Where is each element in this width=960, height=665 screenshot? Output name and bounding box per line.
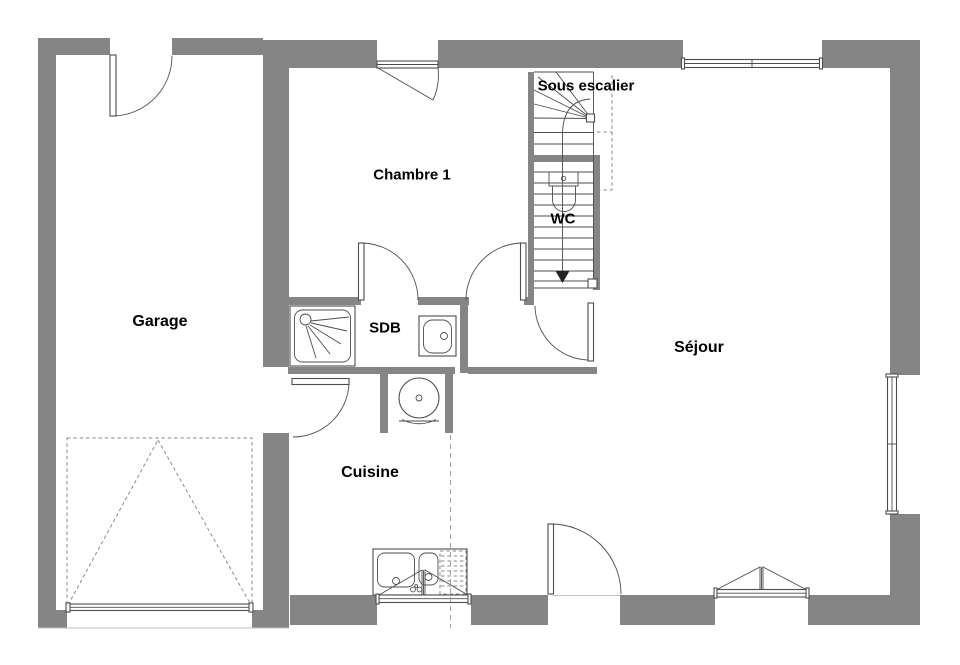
exterior-walls: [38, 38, 920, 628]
living-room-french-door: [714, 567, 809, 598]
toilet: [549, 172, 578, 212]
washbasin: [419, 316, 456, 356]
room-label-sdb: SDB: [369, 320, 401, 337]
room-label-garage: Garage: [132, 313, 187, 331]
room-label-chambre1: Chambre 1: [373, 167, 451, 184]
living-room-side-window: [886, 374, 898, 514]
living-room-top-window: [682, 58, 823, 69]
stair-winder-node: [587, 114, 595, 122]
entry-door: [548, 524, 621, 596]
sink-drainboard: [440, 551, 466, 594]
staircase: [534, 72, 612, 288]
garage-side-door: [110, 55, 172, 116]
bedroom-bathroom-door: [359, 243, 419, 300]
bedroom-hall-door: [466, 243, 526, 300]
kitchen-sink: [373, 549, 467, 595]
room-label-sous-escalier: Sous escalier: [538, 78, 635, 95]
wc-door: [535, 303, 594, 361]
shower: [290, 306, 355, 366]
room-label-wc: WC: [551, 211, 576, 228]
room-label-sejour: Séjour: [674, 339, 724, 357]
water-heater: [399, 378, 439, 424]
floor-plan-drawing: [0, 0, 960, 665]
floor-plan: Garage Chambre 1 Sous escalier WC SDB Cu…: [0, 0, 960, 665]
garage-door: [66, 438, 253, 612]
garage-kitchen-door: [292, 379, 349, 438]
room-label-cuisine: Cuisine: [341, 464, 399, 482]
bedroom-window: [377, 61, 438, 100]
stair-newel-post: [588, 279, 597, 288]
stair-walk-line: [563, 99, 591, 281]
